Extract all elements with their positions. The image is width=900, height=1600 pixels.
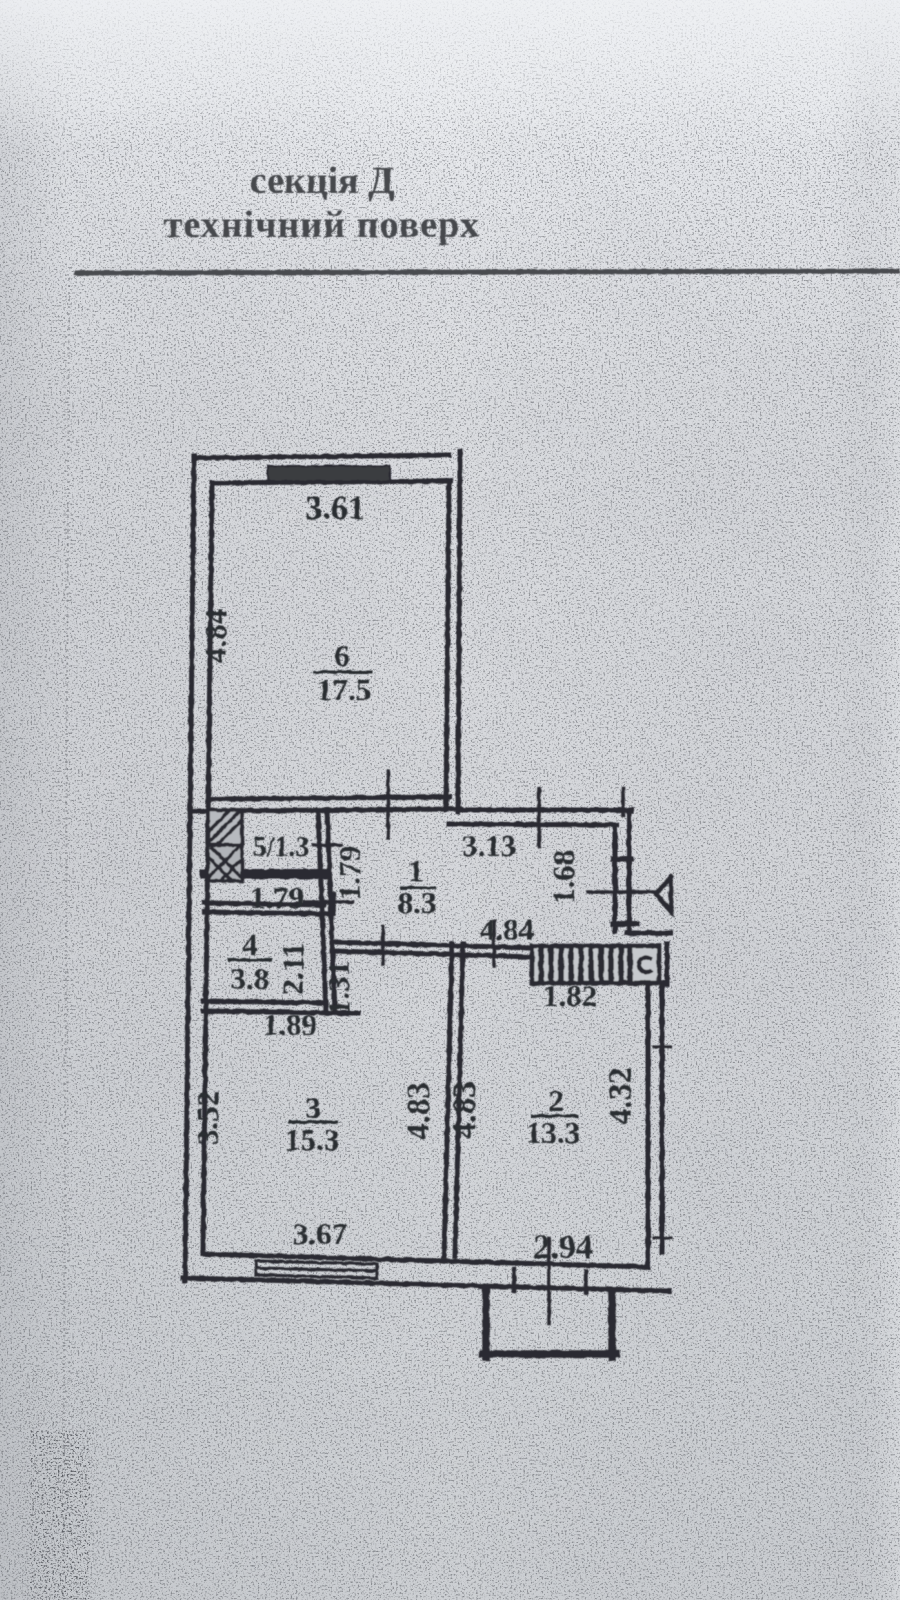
svg-text:4: 4 [242, 927, 258, 962]
svg-text:3: 3 [305, 1090, 321, 1125]
svg-text:1.31: 1.31 [321, 961, 356, 1015]
svg-text:3.61: 3.61 [305, 490, 365, 527]
svg-text:1.89: 1.89 [263, 1007, 317, 1042]
svg-text:5/1.3: 5/1.3 [253, 832, 310, 863]
svg-text:3.13: 3.13 [462, 828, 516, 863]
svg-text:17.5: 17.5 [317, 672, 371, 707]
svg-text:1.68: 1.68 [546, 850, 581, 904]
svg-text:6: 6 [334, 638, 350, 673]
svg-text:2.94: 2.94 [533, 1229, 593, 1266]
svg-text:1.79: 1.79 [250, 880, 304, 915]
svg-text:15.3: 15.3 [285, 1122, 339, 1157]
svg-text:1: 1 [408, 853, 424, 888]
svg-text:2.11: 2.11 [275, 943, 310, 996]
svg-text:4.32: 4.32 [603, 1067, 639, 1125]
svg-text:13.3: 13.3 [526, 1115, 580, 1150]
svg-text:1.82: 1.82 [543, 978, 597, 1013]
svg-text:4.83: 4.83 [447, 1081, 483, 1139]
svg-text:3.67: 3.67 [293, 1216, 347, 1251]
svg-text:3.52: 3.52 [190, 1091, 225, 1145]
svg-text:3.8: 3.8 [231, 961, 270, 996]
svg-text:технічний поверх: технічний поверх [164, 204, 480, 246]
svg-text:4.84: 4.84 [480, 912, 534, 947]
svg-text:2: 2 [548, 1083, 564, 1118]
svg-text:секція Д: секція Д [250, 160, 395, 202]
svg-text:4.83: 4.83 [401, 1082, 437, 1140]
svg-text:8.3: 8.3 [398, 885, 437, 920]
svg-text:1.79: 1.79 [332, 846, 367, 900]
svg-text:4.84: 4.84 [198, 609, 233, 663]
